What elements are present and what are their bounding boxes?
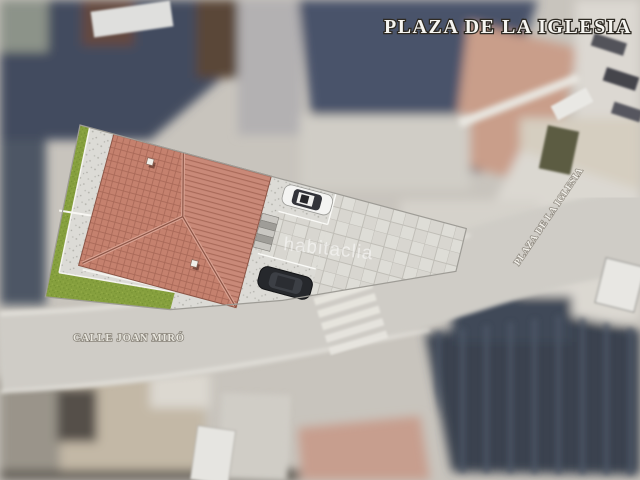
chimney-cap — [190, 260, 198, 268]
chimney-cap — [146, 158, 154, 166]
satellite-patch-green-gray — [0, 0, 48, 52]
page-title: PLAZA DE LA IGLESIA — [384, 16, 632, 38]
street-label-calle-joan-miro: CALLE JOAN MIRÓ — [73, 332, 185, 344]
satellite-building-gray — [0, 378, 62, 480]
aerial-map-image: habitaclia PLAZA DE LA IGLESIA CALLE JOA… — [0, 0, 640, 480]
satellite-roof-brown — [196, 0, 240, 78]
satellite-roof-dark-left — [0, 140, 46, 305]
satellite-roof-ridges — [425, 315, 640, 475]
satellite-shadow-opening — [57, 388, 97, 442]
satellite-alley — [238, 0, 302, 135]
satellite-ground-light — [300, 115, 470, 190]
satellite-van — [190, 426, 235, 480]
map-canvas: habitaclia PLAZA DE LA IGLESIA CALLE JOA… — [0, 0, 640, 480]
